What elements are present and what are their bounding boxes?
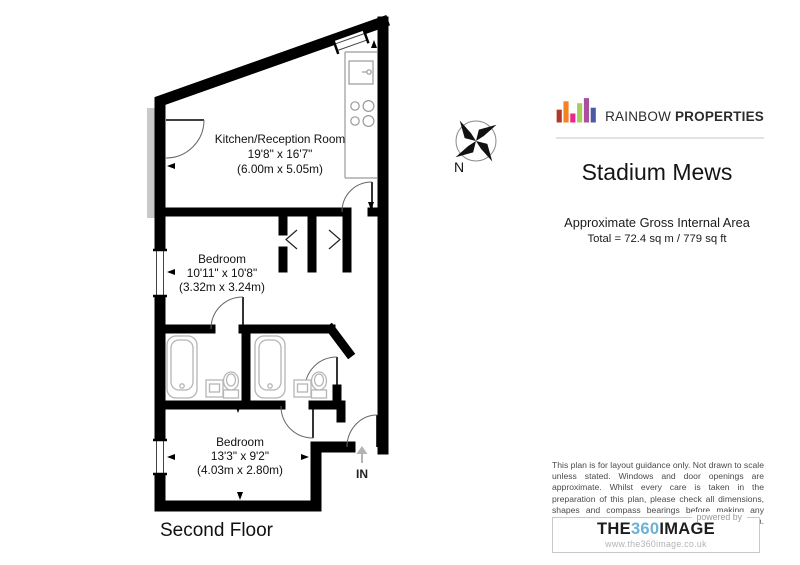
provider-logo-360: 360 xyxy=(631,520,659,538)
window-left-bedroom2 xyxy=(153,440,167,474)
agency-logo: RAINBOW PROPERTIES xyxy=(556,84,764,132)
provider-logo-the: THE xyxy=(597,520,631,538)
provider-box: powered by THE360IMAGE www.the360image.c… xyxy=(552,517,760,553)
room-size-imperial: 13'3" x 9'2" xyxy=(211,449,269,463)
property-title: Stadium Mews xyxy=(550,159,764,186)
room-name: Kitchen/Reception Room xyxy=(215,132,346,146)
kitchen-units xyxy=(345,52,377,178)
powered-by-label: powered by xyxy=(692,512,747,522)
room-size-imperial: 10'11" x 10'8" xyxy=(187,266,257,280)
floor-plan: IN Kitchen/Reception Room 19'8" x 16'7" … xyxy=(0,0,540,565)
room-name: Bedroom xyxy=(198,252,246,266)
entrance-arrow xyxy=(357,446,368,463)
agency-name-bold: PROPERTIES xyxy=(675,109,764,124)
area-heading: Approximate Gross Internal Area xyxy=(550,215,764,230)
entrance-label: IN xyxy=(356,467,368,481)
provider-logo: THE360IMAGE xyxy=(597,521,715,538)
floor-label: Second Floor xyxy=(160,520,274,541)
room-size-metric: (3.32m x 3.24m) xyxy=(179,280,265,294)
area-total: Total = 72.4 sq m / 779 sq ft xyxy=(550,233,764,245)
provider-website: www.the360image.co.uk xyxy=(605,539,707,549)
provider-logo-image: IMAGE xyxy=(659,520,715,538)
floorplan-page: { "plan": { "floor_label": "Second Floor… xyxy=(0,0,800,565)
logo-divider xyxy=(556,137,764,139)
room-name: Bedroom xyxy=(216,435,264,449)
agency-name-regular: RAINBOW xyxy=(605,109,671,124)
room-size-imperial: 19'8" x 16'7" xyxy=(248,147,313,161)
room-labels: Kitchen/Reception Room 19'8" x 16'7" (6.… xyxy=(179,132,345,477)
compass-icon: N xyxy=(453,118,498,175)
compass-north-label: N xyxy=(454,159,464,175)
room-size-metric: (4.03m x 2.80m) xyxy=(197,463,283,477)
window-left-bedroom1 xyxy=(153,250,167,296)
kitchen-hob xyxy=(351,101,374,127)
room-size-metric: (6.00m x 5.05m) xyxy=(237,162,323,176)
logo-bars-icon xyxy=(556,86,597,132)
agency-name: RAINBOW PROPERTIES xyxy=(605,109,764,132)
